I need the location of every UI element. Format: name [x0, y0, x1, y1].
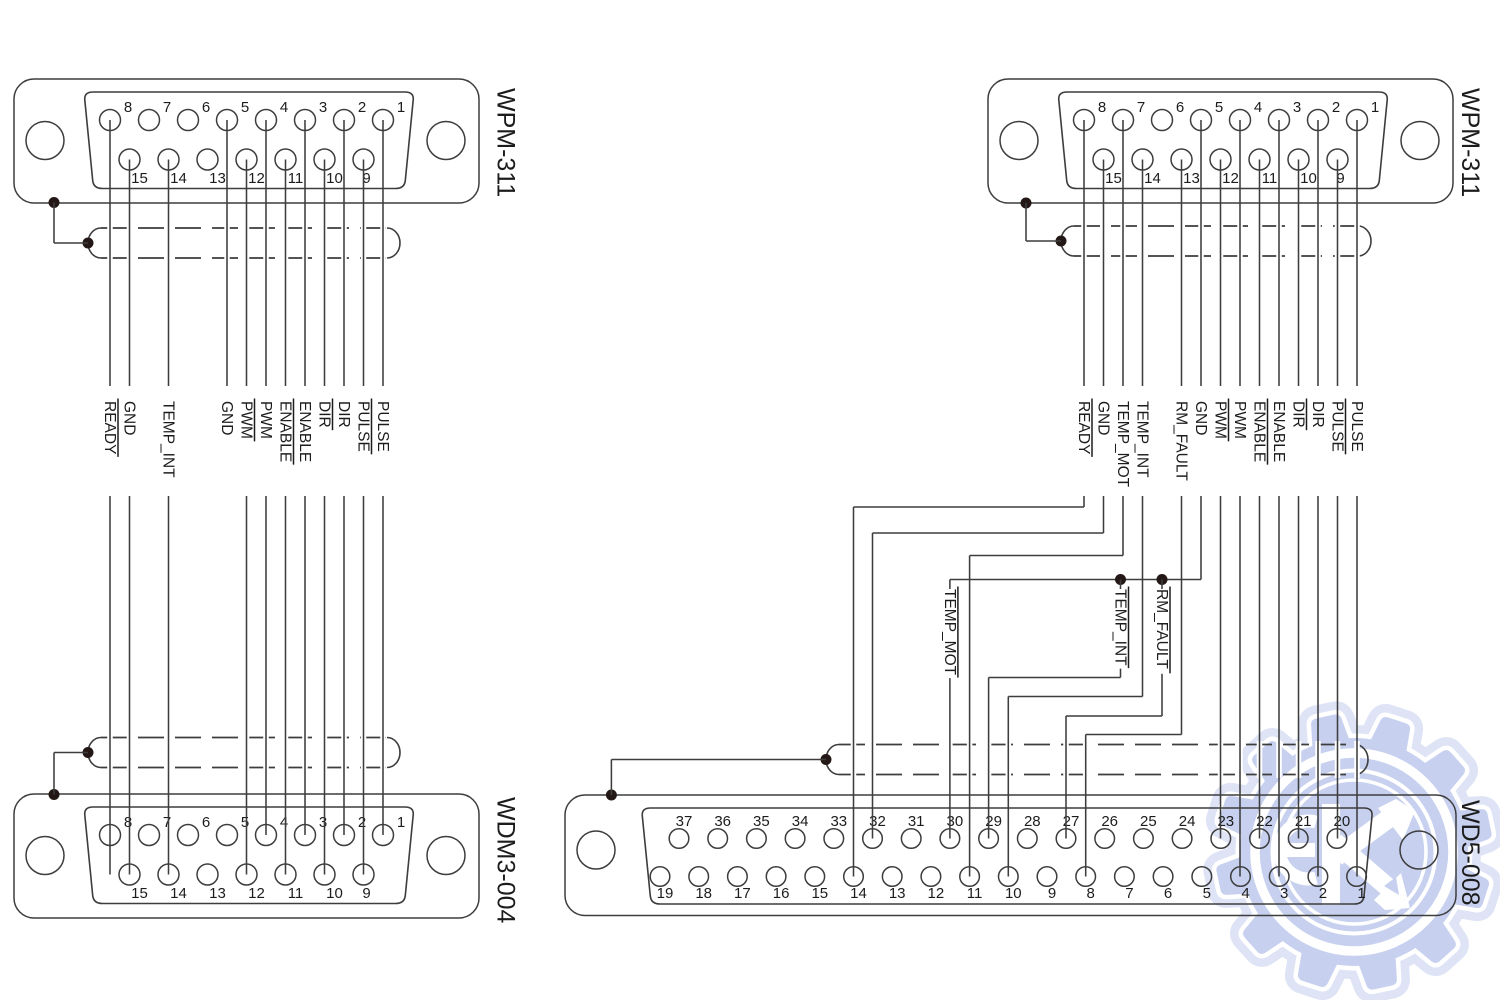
svg-text:PULSE: PULSE [374, 401, 391, 452]
svg-text:READY: READY [101, 401, 118, 454]
svg-text:33: 33 [830, 813, 847, 830]
svg-text:4: 4 [280, 99, 288, 116]
svg-text:7: 7 [163, 814, 171, 831]
svg-text:11: 11 [967, 885, 983, 902]
svg-text:15: 15 [1105, 170, 1122, 187]
svg-text:27: 27 [1063, 813, 1080, 830]
svg-text:6: 6 [202, 814, 210, 831]
svg-text:11: 11 [288, 885, 304, 902]
svg-text:14: 14 [170, 885, 187, 902]
svg-text:6: 6 [202, 99, 210, 116]
svg-text:30: 30 [947, 813, 964, 830]
svg-text:2: 2 [358, 814, 366, 831]
svg-text:25: 25 [1140, 813, 1157, 830]
svg-text:28: 28 [1024, 813, 1041, 830]
svg-text:TEMP_MOT: TEMP_MOT [941, 589, 958, 676]
svg-text:WPM-311: WPM-311 [492, 88, 520, 197]
svg-text:8: 8 [124, 814, 132, 831]
svg-text:ENABLE: ENABLE [1251, 401, 1268, 462]
svg-text:12: 12 [928, 885, 945, 902]
svg-text:37: 37 [676, 813, 693, 830]
svg-text:15: 15 [811, 885, 828, 902]
svg-text:8: 8 [1087, 885, 1095, 902]
svg-text:PWM: PWM [238, 401, 255, 439]
svg-text:11: 11 [1262, 170, 1278, 187]
svg-text:GND: GND [1192, 401, 1209, 435]
svg-text:9: 9 [1048, 885, 1056, 902]
svg-text:21: 21 [1295, 813, 1312, 830]
svg-text:PULSE: PULSE [355, 401, 372, 452]
svg-text:12: 12 [248, 170, 265, 187]
svg-text:1: 1 [1371, 99, 1379, 116]
svg-text:1: 1 [397, 814, 405, 831]
svg-text:TEMP_INT: TEMP_INT [1112, 589, 1129, 666]
svg-text:4: 4 [1241, 885, 1249, 902]
svg-text:24: 24 [1179, 813, 1196, 830]
svg-text:6: 6 [1176, 99, 1184, 116]
svg-text:PWM: PWM [1231, 401, 1248, 439]
svg-text:5: 5 [241, 814, 249, 831]
svg-text:ENABLE: ENABLE [1270, 401, 1287, 462]
svg-text:GND: GND [121, 401, 138, 435]
svg-text:20: 20 [1334, 813, 1351, 830]
svg-text:GND: GND [218, 401, 235, 435]
svg-text:TEMP_INT: TEMP_INT [160, 401, 177, 478]
svg-text:9: 9 [362, 885, 370, 902]
svg-text:PWM: PWM [257, 401, 274, 439]
svg-text:1: 1 [397, 99, 405, 116]
svg-text:8: 8 [124, 99, 132, 116]
svg-text:WPM-311: WPM-311 [1456, 88, 1484, 197]
svg-text:34: 34 [792, 813, 809, 830]
svg-text:PULSE: PULSE [1348, 401, 1365, 452]
svg-text:5: 5 [1203, 885, 1211, 902]
svg-text:18: 18 [695, 885, 712, 902]
svg-text:14: 14 [170, 170, 187, 187]
svg-text:PULSE: PULSE [1329, 401, 1346, 452]
svg-text:15: 15 [131, 170, 148, 187]
svg-text:PWM: PWM [1212, 401, 1229, 439]
svg-text:4: 4 [280, 814, 288, 831]
svg-text:13: 13 [1183, 170, 1200, 187]
svg-text:4: 4 [1254, 99, 1262, 116]
svg-text:TEMP_MOT: TEMP_MOT [1114, 401, 1131, 488]
svg-text:12: 12 [1222, 170, 1239, 187]
svg-text:WD5-008: WD5-008 [1456, 800, 1484, 906]
svg-text:14: 14 [850, 885, 867, 902]
svg-text:15: 15 [131, 885, 148, 902]
svg-text:ENABLE: ENABLE [296, 401, 313, 462]
svg-text:10: 10 [326, 170, 343, 187]
svg-text:WDM3-004: WDM3-004 [492, 797, 520, 924]
svg-text:10: 10 [326, 885, 343, 902]
svg-text:3: 3 [319, 99, 327, 116]
svg-text:10: 10 [1300, 170, 1317, 187]
svg-text:READY: READY [1075, 401, 1092, 454]
svg-text:6: 6 [1164, 885, 1172, 902]
svg-text:32: 32 [869, 813, 886, 830]
svg-text:DIR: DIR [316, 401, 333, 428]
svg-text:DIR: DIR [1309, 401, 1326, 428]
svg-text:14: 14 [1144, 170, 1161, 187]
svg-text:RM_FAULT: RM_FAULT [1153, 589, 1170, 669]
svg-text:11: 11 [288, 170, 304, 187]
svg-text:5: 5 [241, 99, 249, 116]
svg-text:36: 36 [714, 813, 731, 830]
svg-text:35: 35 [753, 813, 770, 830]
svg-text:3: 3 [319, 814, 327, 831]
svg-text:DIR: DIR [335, 401, 352, 428]
svg-text:ENABLE: ENABLE [277, 401, 294, 462]
svg-text:10: 10 [1005, 885, 1022, 902]
svg-text:13: 13 [889, 885, 906, 902]
svg-text:GND: GND [1095, 401, 1112, 435]
svg-text:22: 22 [1256, 813, 1273, 830]
svg-text:17: 17 [734, 885, 751, 902]
svg-text:2: 2 [1319, 885, 1327, 902]
svg-text:19: 19 [657, 885, 674, 902]
svg-text:1: 1 [1357, 885, 1365, 902]
svg-text:12: 12 [248, 885, 265, 902]
svg-text:5: 5 [1215, 99, 1223, 116]
svg-text:7: 7 [163, 99, 171, 116]
svg-text:8: 8 [1098, 99, 1106, 116]
svg-text:DIR: DIR [1290, 401, 1307, 428]
svg-text:13: 13 [209, 885, 226, 902]
svg-text:RM_FAULT: RM_FAULT [1173, 401, 1190, 481]
svg-text:13: 13 [209, 170, 226, 187]
svg-text:2: 2 [358, 99, 366, 116]
svg-text:TEMP_INT: TEMP_INT [1134, 401, 1151, 478]
svg-text:7: 7 [1125, 885, 1133, 902]
svg-text:31: 31 [908, 813, 925, 830]
svg-text:2: 2 [1332, 99, 1340, 116]
svg-text:29: 29 [985, 813, 1002, 830]
svg-text:7: 7 [1137, 99, 1145, 116]
svg-text:16: 16 [773, 885, 790, 902]
svg-text:3: 3 [1280, 885, 1288, 902]
svg-text:26: 26 [1101, 813, 1118, 830]
svg-text:3: 3 [1293, 99, 1301, 116]
